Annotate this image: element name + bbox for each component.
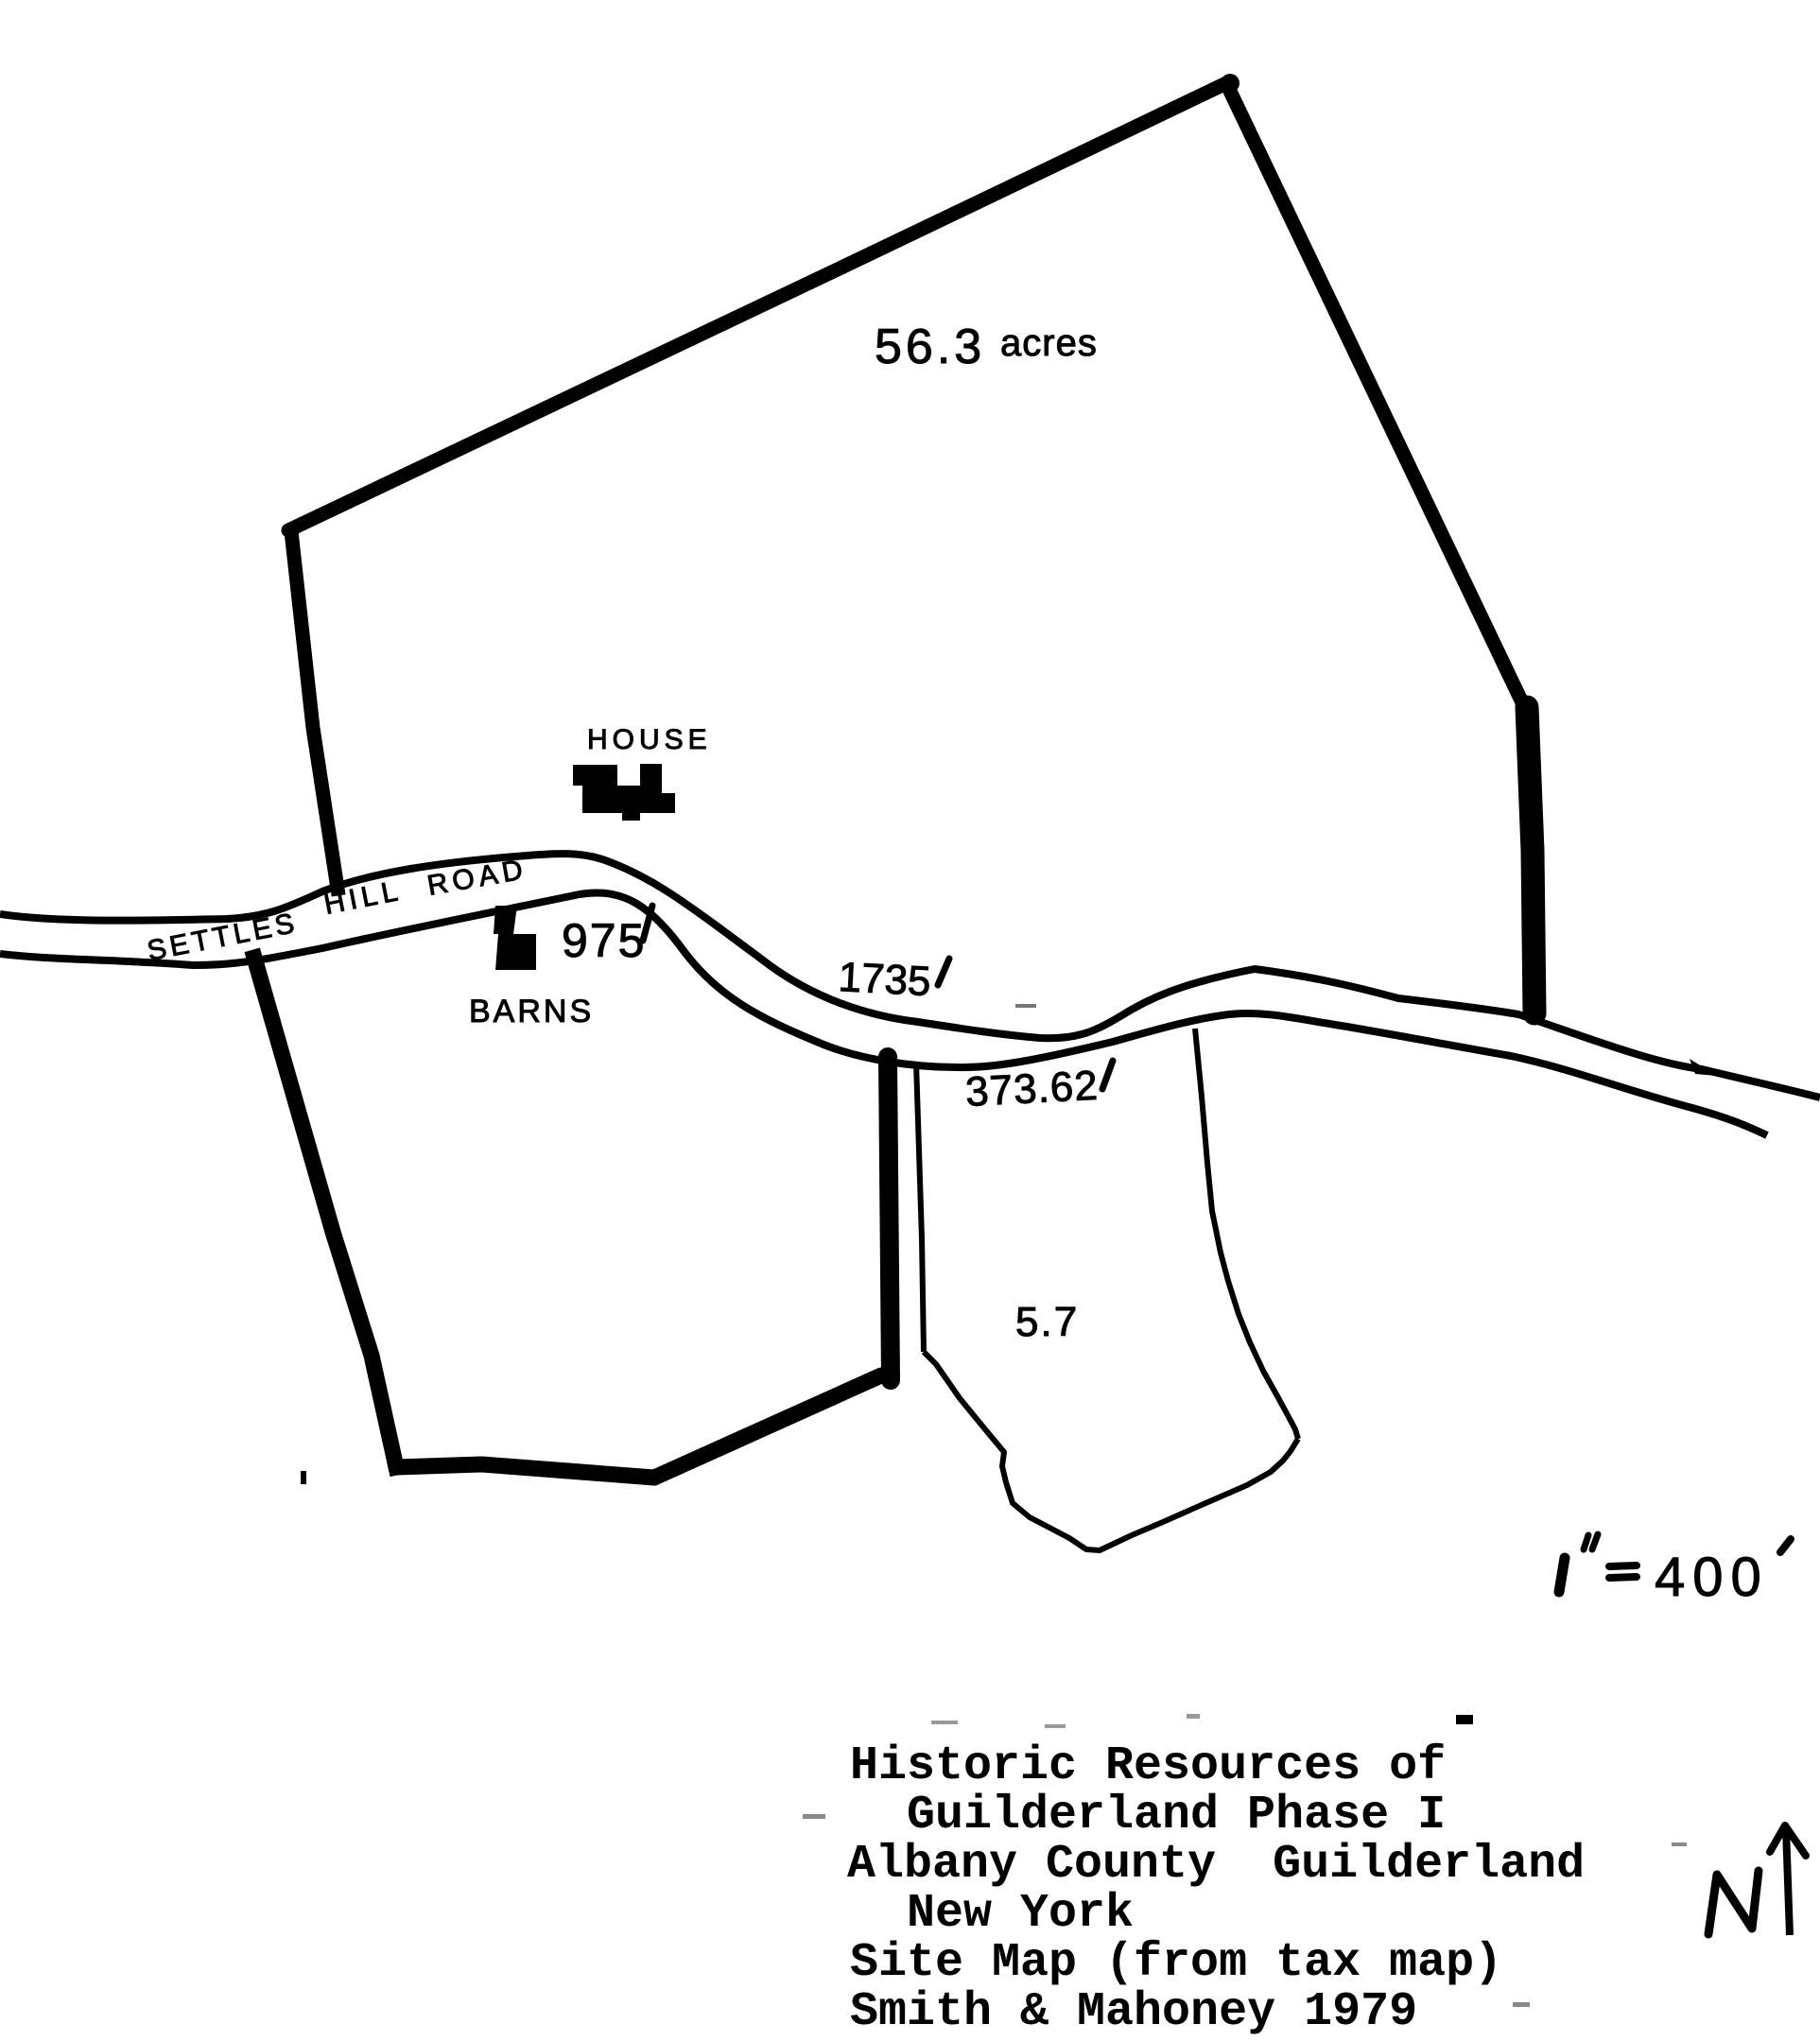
svg-text:BARNS: BARNS xyxy=(469,994,594,1029)
svg-text:HOUSE: HOUSE xyxy=(587,724,712,755)
svg-text:Albany County Guilderland: Albany County Guilderland xyxy=(847,1838,1585,1892)
svg-text:New York: New York xyxy=(907,1887,1134,1941)
svg-text:Historic Resources of: Historic Resources of xyxy=(850,1739,1446,1793)
svg-text:acres: acres xyxy=(1000,322,1098,364)
svg-text:1735: 1735 xyxy=(837,954,931,1005)
svg-text:5.7: 5.7 xyxy=(1015,1299,1079,1345)
svg-text:975: 975 xyxy=(562,914,646,967)
svg-text:Site Map (from tax map): Site Map (from tax map) xyxy=(850,1936,1502,1990)
svg-text:56.3: 56.3 xyxy=(875,320,985,374)
svg-text:Guilderland Phase I: Guilderland Phase I xyxy=(907,1789,1446,1842)
svg-text:400: 400 xyxy=(1655,1547,1769,1608)
svg-text:373.62: 373.62 xyxy=(964,1063,1100,1116)
svg-text:Smith & Mahoney 1979: Smith & Mahoney 1979 xyxy=(850,1985,1417,2039)
